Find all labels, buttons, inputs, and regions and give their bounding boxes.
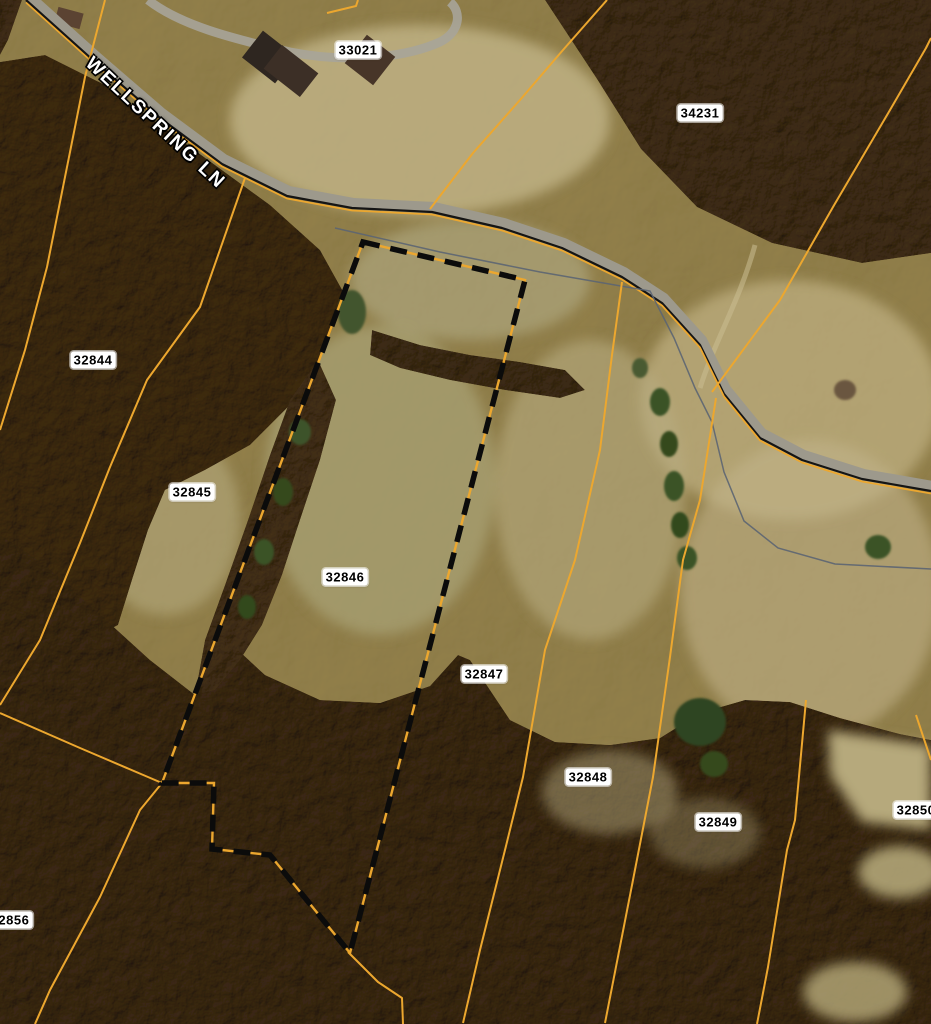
parcel-label[interactable]: 32847 (462, 666, 507, 683)
map-canvas[interactable]: WELLSPRING LN 33021 34231 32844 32845 32… (0, 0, 931, 1024)
line-32847-32848 (463, 282, 622, 1023)
line-northeast-diag (712, 38, 931, 392)
parcel-label[interactable]: 32845 (170, 484, 215, 501)
parcel-label[interactable]: 33021 (336, 42, 381, 59)
line-junction-upleft (0, 713, 162, 783)
road-surface (28, 0, 931, 486)
line-junction-downleft (35, 783, 162, 1024)
parcel-vector-layer (0, 0, 931, 1024)
parcel-label[interactable]: 32849 (696, 814, 741, 831)
road-centerline (26, 0, 931, 491)
road-parcel-line (26, 3, 931, 494)
line-tip-south (348, 952, 403, 1024)
line-mid-east (605, 398, 716, 1023)
parcel-label[interactable]: 32848 (566, 769, 611, 786)
parcel-label[interactable]: 34231 (678, 105, 723, 122)
parcel-label[interactable]: 32850 (894, 802, 931, 819)
parcel-label[interactable]: 32844 (71, 352, 116, 369)
line-top-corner (327, 0, 358, 13)
line-far-right (916, 715, 931, 760)
parcel-label-selected[interactable]: 32846 (323, 569, 368, 586)
selected-parcel-boundary (162, 242, 525, 953)
parcel-label[interactable]: 32856 (0, 912, 32, 929)
selected-parcel-underlay (162, 242, 525, 953)
line-33021-34231 (430, 0, 607, 209)
line-32849-east (757, 700, 806, 1024)
line-32844-32845 (0, 178, 245, 705)
